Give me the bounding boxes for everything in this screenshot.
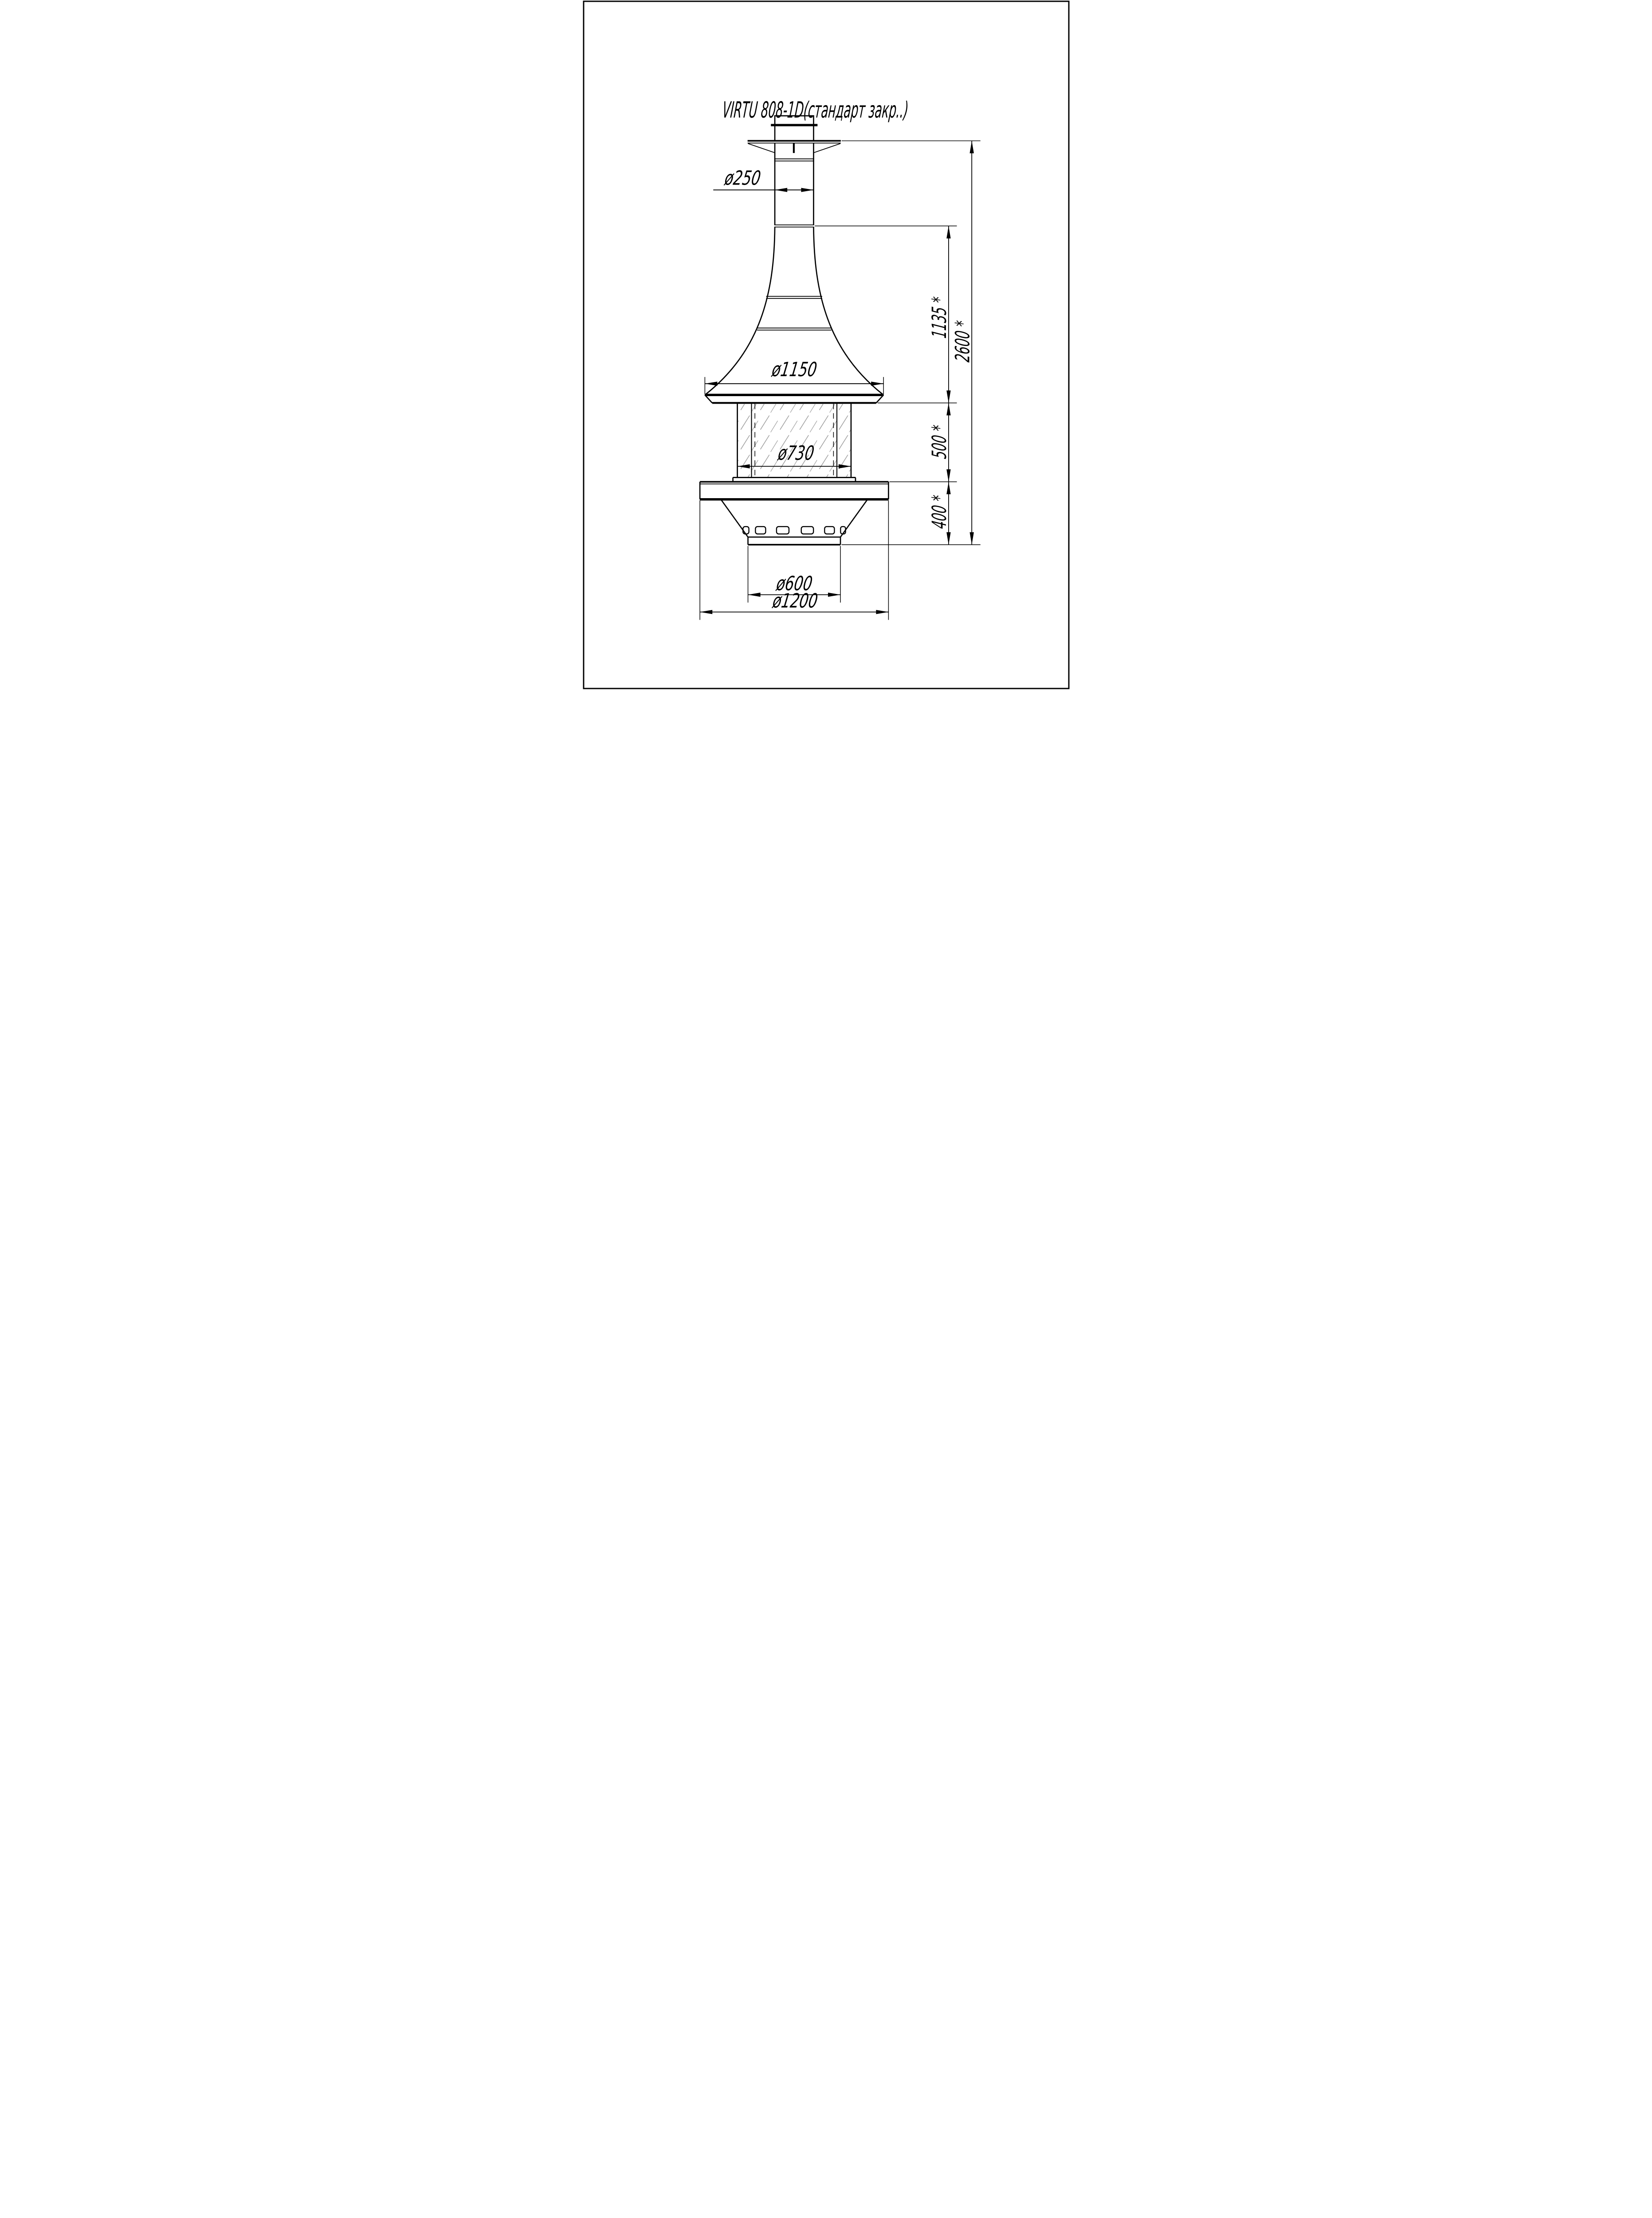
arrowhead-down-icon: [946, 469, 950, 482]
dimension-pipe-diameter: ø250: [713, 167, 813, 192]
arrowhead-down-icon: [946, 532, 950, 545]
arrowhead-up-icon: [946, 482, 950, 494]
vent-slot: [824, 527, 834, 534]
dimension-hood-diameter: ø1150: [705, 358, 883, 394]
dim-label-hood-height: 1135 *: [928, 295, 950, 339]
arrowhead-up-icon: [946, 403, 950, 415]
dim-label-pipe-diameter: ø250: [722, 167, 762, 190]
base-cone: [721, 499, 867, 545]
page-title: VIRTU 808-1D(стандарт закр..): [721, 98, 909, 123]
arrowhead-right-icon: [876, 610, 888, 614]
vent-slot: [776, 527, 789, 534]
drawing-canvas: VIRTU 808-1D(стандарт закр..): [582, 0, 1070, 690]
bell-curve-right: [813, 227, 883, 395]
dim-label-base-diameter: ø1200: [770, 590, 819, 613]
flue-pipe-upper: [775, 125, 813, 141]
arrowhead-left-icon: [705, 381, 717, 385]
vent-slot: [801, 527, 813, 534]
arrowhead-up-icon: [946, 226, 950, 238]
dimension-base-diameter: ø1200: [700, 500, 888, 620]
flange-brace-left: [748, 144, 774, 153]
arrowhead-left-icon: [700, 610, 712, 614]
arrowhead-up-icon: [969, 141, 973, 153]
vent-slot: [755, 527, 765, 534]
dim-label-hood-diameter: ø1150: [770, 358, 818, 381]
arrowhead-right-icon: [871, 381, 883, 385]
cone-slant-right: [840, 499, 867, 537]
dimension-height-chain: 1135 * 500 * 400 *: [815, 226, 957, 544]
hood-skirt-left: [705, 395, 712, 403]
flange-brace-right: [813, 144, 840, 153]
dim-label-total-height: 2600 *: [951, 319, 973, 363]
dim-label-base-section-height: 400 *: [928, 494, 950, 530]
flue-pipe-lower: [774, 143, 814, 227]
cone-slant-left: [721, 499, 748, 537]
mounting-flange: [747, 141, 840, 153]
dim-label-glass-section-height: 500 *: [928, 424, 950, 460]
arrowhead-down-icon: [946, 390, 950, 403]
title-block: VIRTU 808-1D(стандарт закр..): [721, 98, 909, 123]
arrowhead-down-icon: [969, 532, 973, 545]
arrowhead-left-icon: [775, 188, 787, 192]
bell-curve-left: [705, 227, 775, 395]
arrowhead-left-icon: [748, 593, 760, 597]
vent-slot: [743, 527, 749, 534]
dim-label-glass-diameter: ø730: [776, 442, 816, 465]
arrowhead-right-icon: [828, 593, 840, 597]
arrowhead-right-icon: [801, 188, 813, 192]
base-plate: [700, 482, 888, 499]
drawing-sheet: VIRTU 808-1D(стандарт закр..): [582, 0, 1070, 690]
hood-skirt-right: [876, 395, 883, 403]
